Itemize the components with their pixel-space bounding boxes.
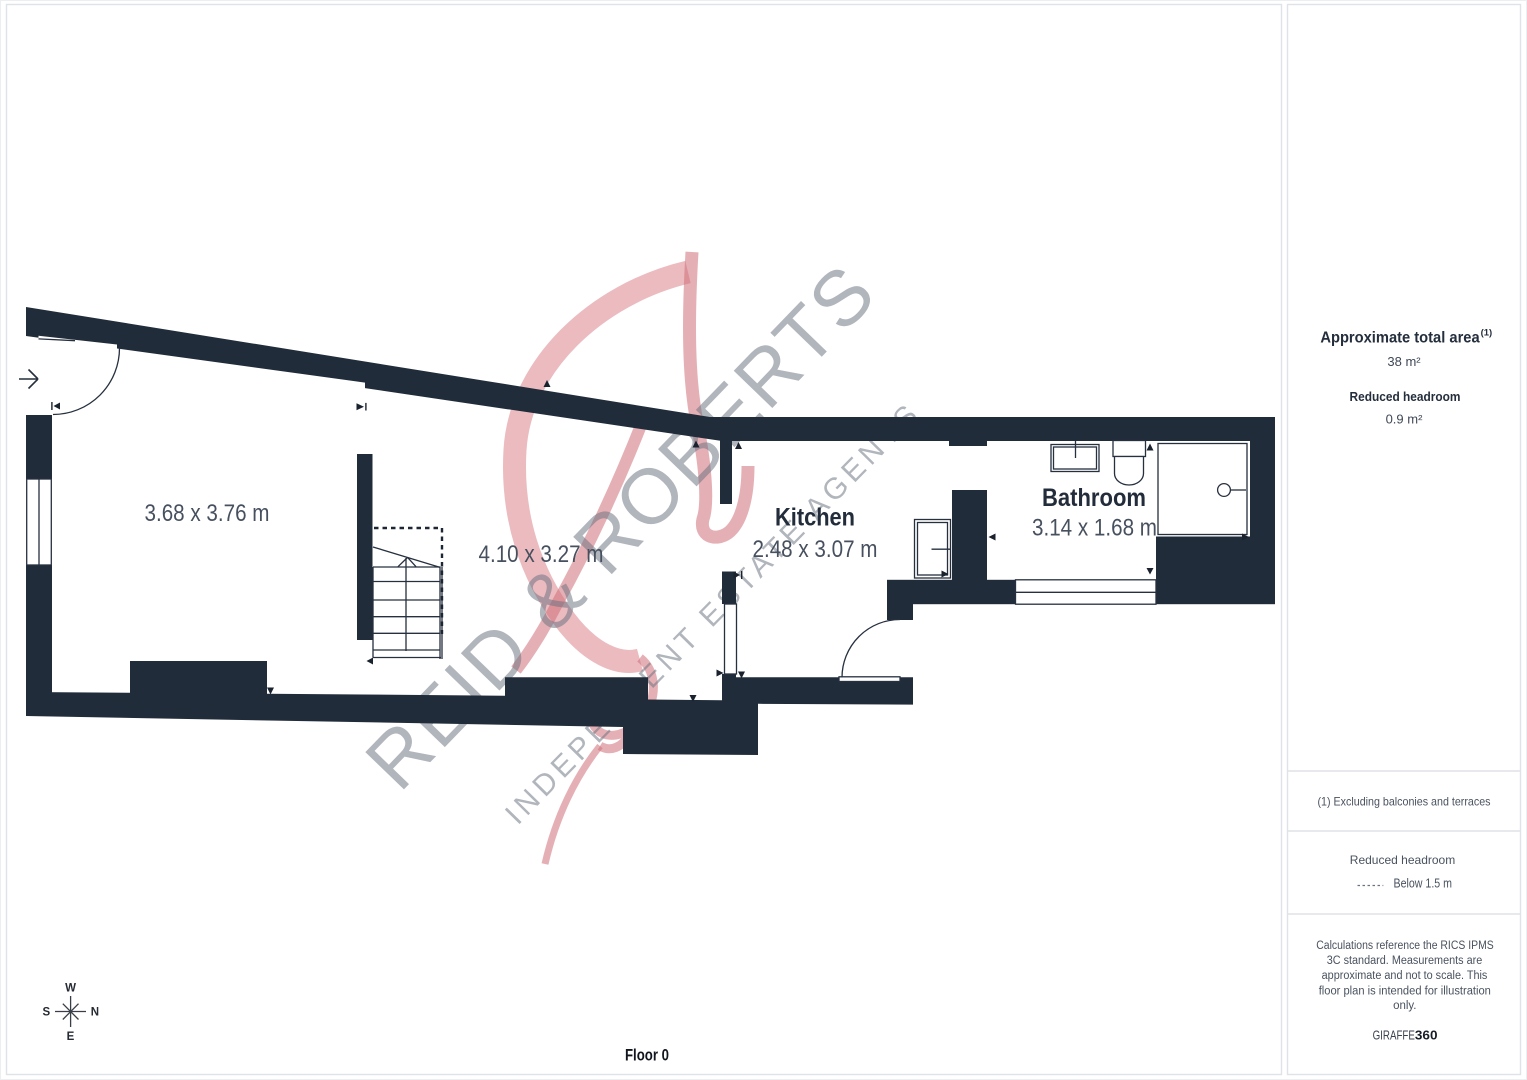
svg-text:38 m²: 38 m² (1387, 354, 1421, 369)
svg-text:Approximate total area: Approximate total area (1320, 329, 1479, 346)
svg-text:E: E (67, 1031, 75, 1043)
svg-text:360: 360 (1415, 1028, 1438, 1043)
svg-text:3.14 x 1.68 m: 3.14 x 1.68 m (1032, 515, 1157, 542)
svg-text:3.68 x 3.76 m: 3.68 x 3.76 m (145, 500, 270, 527)
svg-text:floor plan is intended for ill: floor plan is intended for illustration (1319, 985, 1491, 997)
svg-text:(1): (1) (1481, 328, 1493, 339)
svg-text:2.48 x 3.07 m: 2.48 x 3.07 m (753, 536, 878, 563)
svg-text:(1) Excluding balconies and te: (1) Excluding balconies and terraces (1318, 795, 1491, 809)
svg-text:Reduced headroom: Reduced headroom (1350, 853, 1455, 867)
svg-text:Bathroom: Bathroom (1042, 484, 1146, 512)
svg-text:Kitchen: Kitchen (775, 504, 855, 532)
svg-text:Calculations reference the RIC: Calculations reference the RICS IPMS (1316, 940, 1494, 952)
svg-text:Floor 0: Floor 0 (625, 1047, 669, 1065)
svg-text:0.9 m²: 0.9 m² (1386, 411, 1424, 426)
svg-text:GIRAFFE: GIRAFFE (1373, 1028, 1416, 1043)
svg-text:approximate and not to scale.: approximate and not to scale. This (1322, 970, 1488, 982)
svg-text:Reduced headroom: Reduced headroom (1350, 390, 1461, 404)
svg-text:W: W (65, 983, 76, 995)
svg-text:Below 1.5 m: Below 1.5 m (1394, 877, 1453, 891)
svg-text:only.: only. (1393, 1000, 1416, 1012)
svg-text:4.10 x 3.27 m: 4.10 x 3.27 m (479, 541, 604, 568)
svg-text:S: S (42, 1007, 50, 1019)
svg-text:N: N (91, 1007, 99, 1019)
svg-text:3C standard. Measurements are: 3C standard. Measurements are (1327, 955, 1483, 967)
